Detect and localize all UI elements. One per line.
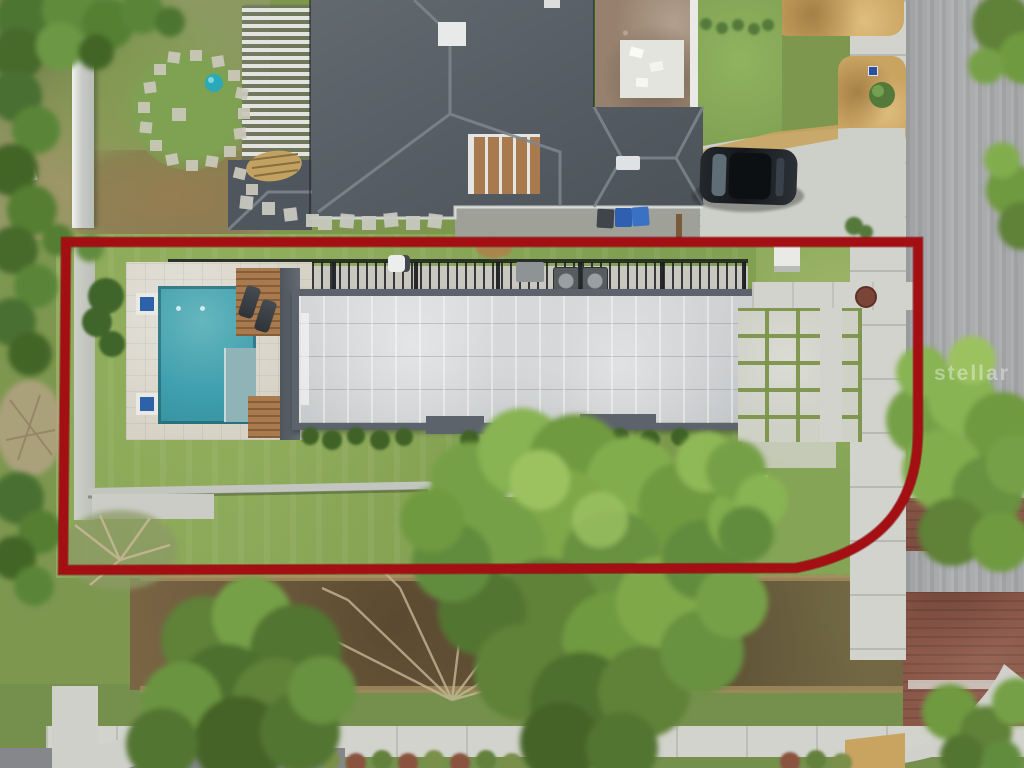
overlay-illustration bbox=[0, 0, 1024, 768]
tree-right-edge bbox=[968, 0, 1024, 250]
parked-car bbox=[692, 146, 804, 212]
teal-ball bbox=[205, 74, 223, 92]
pool-west-bush bbox=[82, 278, 125, 357]
dry-brush-left bbox=[0, 380, 64, 476]
tree-bottom-left bbox=[126, 576, 356, 768]
stepping-stone-loop bbox=[138, 50, 258, 195]
dry-tree-lot bbox=[62, 510, 178, 590]
watermark-text: stellar bbox=[934, 362, 1010, 386]
manhole-cover bbox=[856, 287, 876, 307]
neighbor-house-roof bbox=[228, 0, 703, 230]
aerial-photo-scene: stellar bbox=[0, 0, 1024, 768]
mulch-ring-shrub bbox=[869, 82, 895, 108]
